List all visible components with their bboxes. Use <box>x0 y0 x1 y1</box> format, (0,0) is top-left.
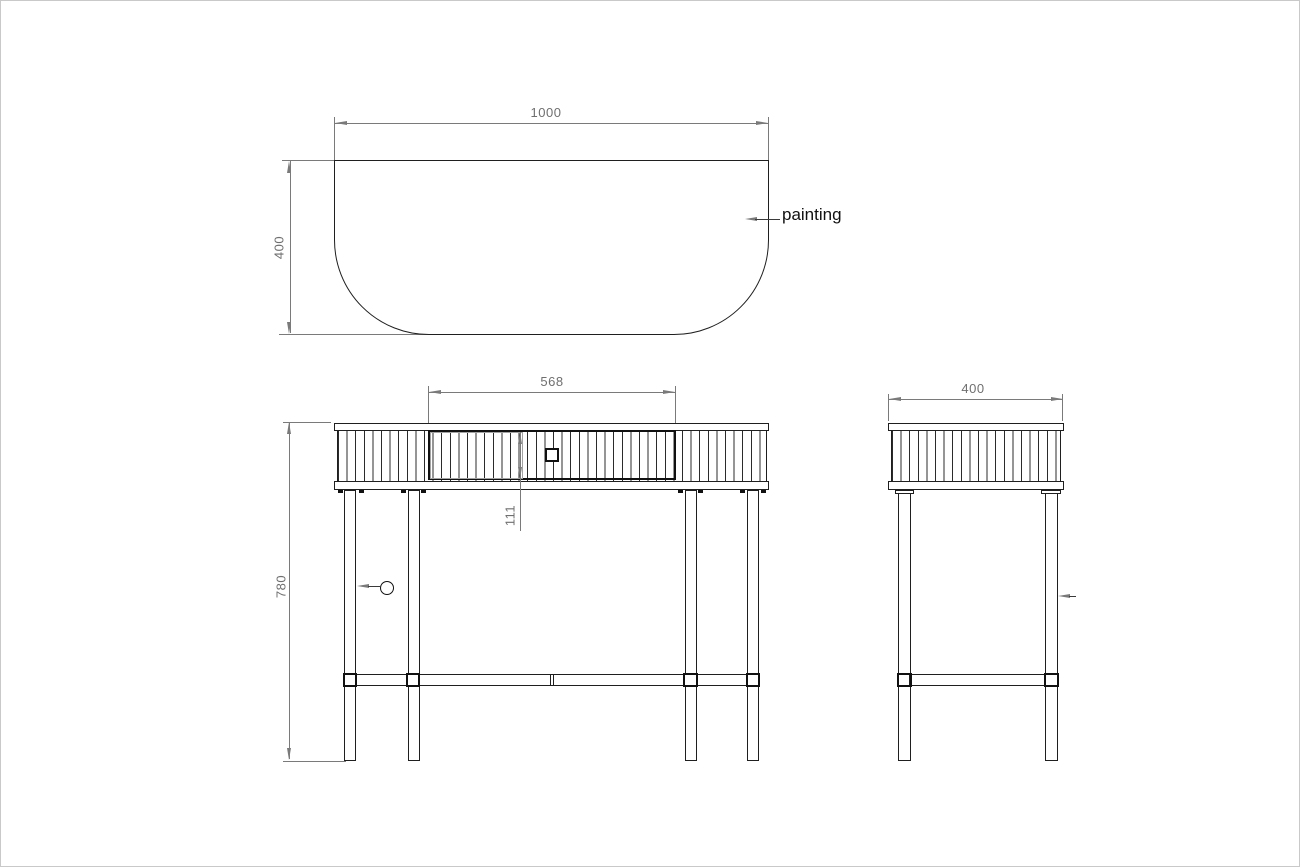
side-bottom-rail <box>888 481 1064 490</box>
stretcher-joint-block <box>343 673 358 687</box>
dim-arrow-up-icon <box>518 432 522 444</box>
dim-arrow-up-icon <box>287 161 291 173</box>
dim-arrow-right-icon <box>756 121 768 125</box>
dim-line-table-height <box>289 423 290 759</box>
dim-label-top-depth: 400 <box>272 228 287 268</box>
leg-bracket <box>698 490 703 493</box>
dim-arrow-right-icon <box>663 390 675 394</box>
dim-line-top-depth <box>290 161 291 333</box>
dim-arrow-up-icon <box>287 422 291 434</box>
dim-line-drawer-height <box>520 432 521 531</box>
front-bottom-rail <box>334 481 769 490</box>
leg-bracket <box>359 490 364 493</box>
dim-label-top-width: 1000 <box>516 105 576 120</box>
dim-arrow-left-icon <box>335 121 347 125</box>
tabletop-outline <box>334 160 769 335</box>
side-leg <box>898 492 911 761</box>
side-apron-fluted <box>891 431 1061 481</box>
dim-arrow-left-icon <box>889 397 901 401</box>
dim-line-drawer-width <box>429 392 675 393</box>
dim-label-drawer-height: 111 <box>502 496 517 536</box>
dim-arrow-down-icon <box>287 748 291 760</box>
stretcher-joint-block <box>897 673 912 687</box>
leg-bracket <box>401 490 406 493</box>
side-stretcher <box>909 674 1046 686</box>
leg-bracket <box>761 490 766 493</box>
stretcher-joint-block <box>746 673 761 687</box>
drawing-canvas: 1000 400 painting 568 780 <box>0 0 1300 867</box>
leg-bracket <box>338 490 343 493</box>
balloon-callout-circle <box>380 581 394 595</box>
dim-extension-line <box>279 334 431 335</box>
dim-extension-line <box>283 761 346 762</box>
front-leg <box>685 490 697 761</box>
stretcher-joint-block <box>683 673 698 687</box>
dim-arrow-right-icon <box>1051 397 1063 401</box>
dim-extension-line <box>768 117 769 160</box>
side-leg-plate <box>1041 490 1061 495</box>
leg-bracket <box>421 490 426 493</box>
leg-bracket <box>678 490 683 493</box>
stretcher-joint-block <box>406 673 421 687</box>
front-leg <box>747 490 759 761</box>
dim-label-side-depth: 400 <box>943 381 1003 396</box>
drawer-highlight-box <box>430 432 523 479</box>
balloon-leader-line <box>368 586 380 587</box>
side-tabletop-edge <box>888 423 1064 432</box>
dim-label-drawer-width: 568 <box>522 374 582 389</box>
side-leader-line <box>1069 596 1076 597</box>
stretcher-center-joint <box>550 674 554 686</box>
dim-arrow-left-icon <box>429 390 441 394</box>
painting-leader-line <box>755 219 780 220</box>
front-leg <box>408 490 420 761</box>
leg-bracket <box>740 490 745 493</box>
dim-arrow-down-icon <box>518 467 522 479</box>
dim-line-side-depth <box>889 399 1063 400</box>
front-leg <box>344 490 356 761</box>
painting-label: painting <box>782 205 842 225</box>
dim-line-top-width <box>335 123 768 124</box>
side-leg-plate <box>895 490 915 495</box>
dim-label-table-height: 780 <box>274 567 289 607</box>
side-leader-arrow-icon <box>1058 594 1070 598</box>
drawer-knob <box>545 448 559 462</box>
stretcher-joint-block <box>1044 673 1059 687</box>
side-leg <box>1045 492 1058 761</box>
dim-arrow-down-icon <box>287 322 291 334</box>
